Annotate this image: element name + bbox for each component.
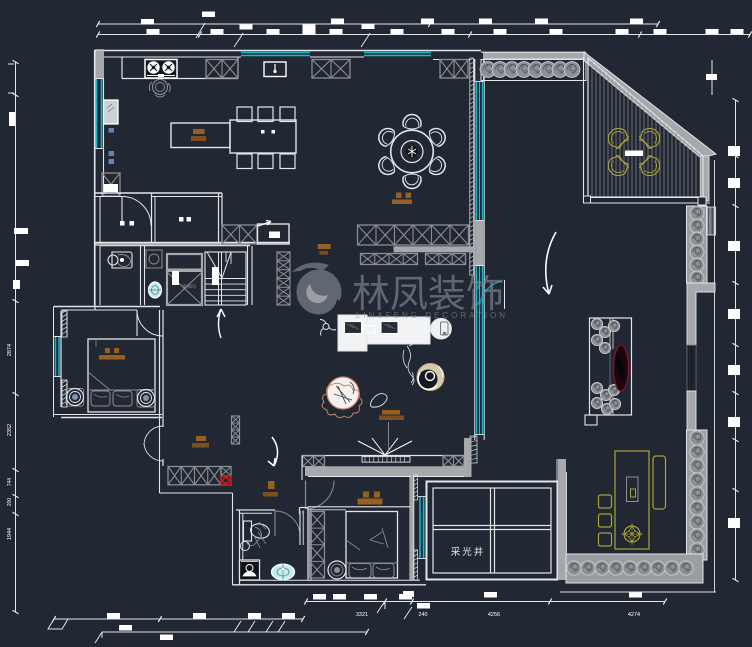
svg-text:2352: 2352 [7, 424, 13, 436]
svg-text:林凤装饰: 林凤装饰 [352, 274, 504, 316]
svg-text:200: 200 [7, 498, 13, 507]
svg-text:3321: 3321 [356, 612, 368, 618]
svg-text:采光井: 采光井 [451, 546, 486, 558]
svg-text:LIN&FENG DECORATION: LIN&FENG DECORATION [356, 311, 508, 320]
svg-text:240: 240 [418, 612, 427, 618]
svg-text:1944: 1944 [7, 528, 13, 540]
svg-text:744: 744 [7, 478, 13, 487]
svg-text:2874: 2874 [7, 344, 13, 356]
svg-text:4256: 4256 [488, 612, 500, 618]
svg-text:4274: 4274 [628, 612, 640, 618]
svg-text:电梯间: 电梯间 [182, 283, 196, 290]
